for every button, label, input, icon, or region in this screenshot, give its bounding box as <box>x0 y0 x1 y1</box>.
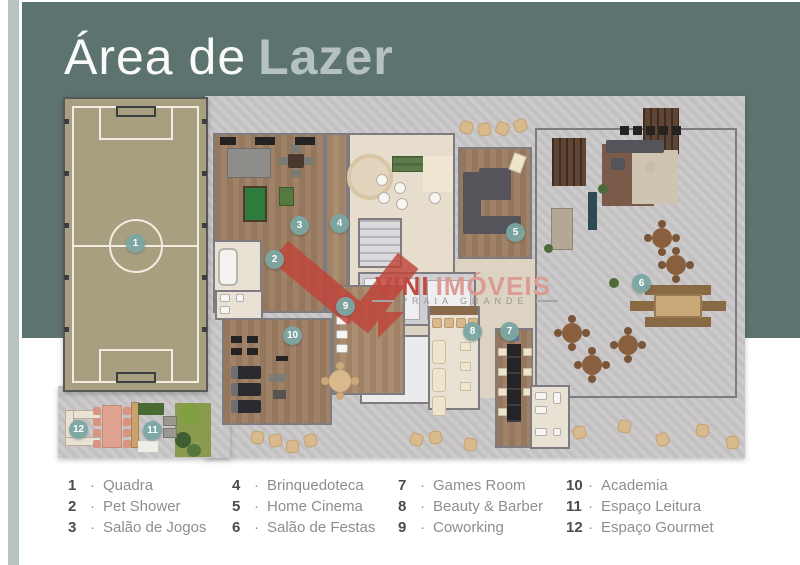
legend-label: Academia <box>601 476 668 495</box>
gym-machine <box>231 348 242 355</box>
left-accent-stripe <box>8 0 19 565</box>
chair <box>93 429 101 437</box>
kids-table <box>396 198 408 210</box>
pouf <box>645 162 655 172</box>
bush <box>187 444 201 457</box>
legend-separator: · <box>588 497 593 516</box>
armchair <box>611 158 625 170</box>
pet-tub <box>218 248 238 286</box>
page-title: Área deLazer <box>64 28 394 86</box>
legend-item: 7·Games Room <box>398 476 543 495</box>
lounger <box>163 416 177 426</box>
legend-number: 12 <box>566 518 588 537</box>
pouf <box>695 423 710 438</box>
game-table <box>279 187 294 206</box>
hedge <box>138 403 164 415</box>
legend-number: 2 <box>68 497 90 516</box>
chair <box>659 126 668 135</box>
chair <box>672 126 681 135</box>
chair <box>93 418 101 426</box>
tagline-rule-right <box>536 300 558 302</box>
marker-12-espaco-gourmet: 12 <box>69 420 88 439</box>
legend-separator: · <box>254 518 259 537</box>
legend-label: Brinquedoteca <box>267 476 364 495</box>
legend-item: 11·Espaço Leitura <box>566 497 714 516</box>
dining-table <box>562 323 582 343</box>
cabinet <box>220 137 236 145</box>
toilet <box>220 306 230 314</box>
watermark-tagline: PRAIA GRANDE <box>372 296 558 306</box>
stool <box>498 388 507 396</box>
legend-label: Games Room <box>433 476 526 495</box>
cabinet <box>588 192 597 230</box>
lounger <box>432 368 446 392</box>
legend-number: 5 <box>232 497 254 516</box>
dining-table <box>652 228 672 248</box>
bench <box>138 441 158 452</box>
legend-item: 6·Salão de Festas <box>232 518 375 537</box>
sink <box>220 294 230 302</box>
card-table <box>288 154 304 168</box>
styling-chair <box>460 362 471 371</box>
marker-7-games-room: 7 <box>500 322 519 341</box>
chair <box>123 418 131 426</box>
weight-station <box>273 390 286 399</box>
pouf <box>477 122 492 137</box>
legend-item: 1·Quadra <box>68 476 206 495</box>
marker-3-salao-de-jogos: 3 <box>290 216 309 235</box>
marker-4-brinquedoteca: 4 <box>330 214 349 233</box>
marker-2-pet-shower: 2 <box>265 250 284 269</box>
chair <box>123 407 131 415</box>
logo-tip <box>378 312 404 338</box>
legend-item: 5·Home Cinema <box>232 497 375 516</box>
legend-separator: · <box>254 476 259 495</box>
toilet <box>553 392 561 404</box>
legend-number: 9 <box>398 518 420 537</box>
treadmill <box>231 383 261 396</box>
page-title-bold: Lazer <box>258 29 394 85</box>
legend-separator: · <box>420 518 425 537</box>
treadmill <box>231 400 261 413</box>
treadmill <box>231 366 261 379</box>
legend-separator: · <box>90 476 95 495</box>
legend-label: Espaço Leitura <box>601 497 701 516</box>
wash-chair <box>432 318 442 328</box>
plant <box>598 184 608 194</box>
gym-machine <box>231 336 242 343</box>
gym-machine <box>247 336 258 343</box>
legend-column-4: 10·Academia 11·Espaço Leitura 12·Espaço … <box>566 476 714 539</box>
lounger <box>163 428 177 438</box>
floor-plan: VINIIMÓVEIS PRAIA GRANDE 1 2 3 4 5 6 7 8… <box>55 92 747 458</box>
stool <box>523 348 532 356</box>
wood-deck <box>552 138 586 186</box>
legend-separator: · <box>588 476 593 495</box>
legend-number: 6 <box>232 518 254 537</box>
stool <box>498 408 507 416</box>
legend-separator: · <box>420 497 425 516</box>
lounger <box>432 340 446 364</box>
chair <box>123 429 131 437</box>
stool <box>498 368 507 376</box>
marker-9-coworking: 9 <box>336 297 355 316</box>
tagline-text: PRAIA GRANDE <box>401 296 529 306</box>
legend-separator: · <box>90 497 95 516</box>
legend-label: Salão de Jogos <box>103 518 206 537</box>
pool-table <box>243 186 267 222</box>
legend-column-3: 7·Games Room 8·Beauty & Barber 9·Coworki… <box>398 476 543 539</box>
pouf <box>725 435 740 450</box>
legend-label: Coworking <box>433 518 504 537</box>
kids-table <box>376 174 388 186</box>
court-goal-bottom <box>116 372 156 383</box>
legend-item: 4·Brinquedoteca <box>232 476 375 495</box>
legend-separator: · <box>420 476 425 495</box>
kids-table <box>429 192 441 204</box>
legend-label: Home Cinema <box>267 497 363 516</box>
legend-label: Pet Shower <box>103 497 181 516</box>
tree <box>180 404 200 424</box>
plant <box>544 244 553 253</box>
legend-item: 3·Salão de Jogos <box>68 518 206 537</box>
legend-number: 8 <box>398 497 420 516</box>
chair <box>123 440 131 448</box>
legend-column-2: 4·Brinquedoteca 5·Home Cinema 6·Salão de… <box>232 476 375 539</box>
legend-item: 2·Pet Shower <box>68 497 206 516</box>
dining-table <box>618 335 638 355</box>
legend-number: 1 <box>68 476 90 495</box>
sink <box>535 428 547 436</box>
play-mat <box>423 156 453 192</box>
sofa-set <box>227 148 271 178</box>
marker-10-academia: 10 <box>283 326 302 345</box>
toilet <box>553 428 561 436</box>
gourmet-table <box>102 405 122 448</box>
legend-label: Salão de Festas <box>267 518 375 537</box>
legend-number: 11 <box>566 497 588 516</box>
marker-11-espaco-leitura: 11 <box>143 421 162 440</box>
lounge-sofa <box>606 140 664 153</box>
legend-separator: · <box>588 518 593 537</box>
sink <box>535 392 547 400</box>
dumbbell-rack <box>276 356 288 361</box>
lounge-rug-light <box>632 150 678 204</box>
bar-counter <box>507 344 521 422</box>
legend-separator: · <box>90 518 95 537</box>
tagline-rule-left <box>372 300 394 302</box>
chair <box>646 126 655 135</box>
stool <box>498 348 507 356</box>
barber-counter <box>430 306 478 315</box>
toilet <box>535 406 547 414</box>
court-goal-top <box>116 106 156 117</box>
chair <box>620 126 629 135</box>
legend-label: Quadra <box>103 476 153 495</box>
kitchen-island <box>551 208 573 250</box>
legend-item: 9·Coworking <box>398 518 543 537</box>
kids-table <box>394 182 406 194</box>
marker-5-home-cinema: 5 <box>506 223 525 242</box>
sink <box>236 294 244 302</box>
legend-number: 4 <box>232 476 254 495</box>
chair <box>93 440 101 448</box>
kids-table <box>378 192 390 204</box>
meeting-table <box>329 370 351 392</box>
styling-chair <box>460 342 471 351</box>
plant <box>609 278 619 288</box>
chair <box>93 407 101 415</box>
gym-bench <box>269 374 285 382</box>
wash-chair <box>444 318 454 328</box>
legend-label: Beauty & Barber <box>433 497 543 516</box>
pouf <box>428 430 443 445</box>
court-side-lights-left <box>64 119 69 377</box>
styling-chair <box>460 382 471 391</box>
cabinet <box>255 137 275 145</box>
marker-1-quadra: 1 <box>126 234 145 253</box>
legend-column-1: 1·Quadra 2·Pet Shower 3·Salão de Jogos <box>68 476 206 539</box>
dining-table <box>582 355 602 375</box>
gym-machine <box>247 348 258 355</box>
legend-item: 10·Academia <box>566 476 714 495</box>
pouf <box>285 439 300 454</box>
cabinet <box>295 137 315 145</box>
stool <box>523 368 532 376</box>
marker-8-beauty-barber: 8 <box>463 322 482 341</box>
legend-item: 8·Beauty & Barber <box>398 497 543 516</box>
page-title-light: Área de <box>64 29 246 85</box>
lounger <box>432 396 446 416</box>
legend-separator: · <box>254 497 259 516</box>
legend-number: 7 <box>398 476 420 495</box>
dining-table <box>666 255 686 275</box>
legend-number: 3 <box>68 518 90 537</box>
long-table <box>654 294 702 318</box>
chair <box>633 126 642 135</box>
court-side-lights-right <box>202 119 207 377</box>
cinema-cushions <box>479 168 511 200</box>
legend-label: Espaço Gourmet <box>601 518 714 537</box>
legend-number: 10 <box>566 476 588 495</box>
marker-6-salao-de-festas: 6 <box>632 274 651 293</box>
legend-item: 12·Espaço Gourmet <box>566 518 714 537</box>
